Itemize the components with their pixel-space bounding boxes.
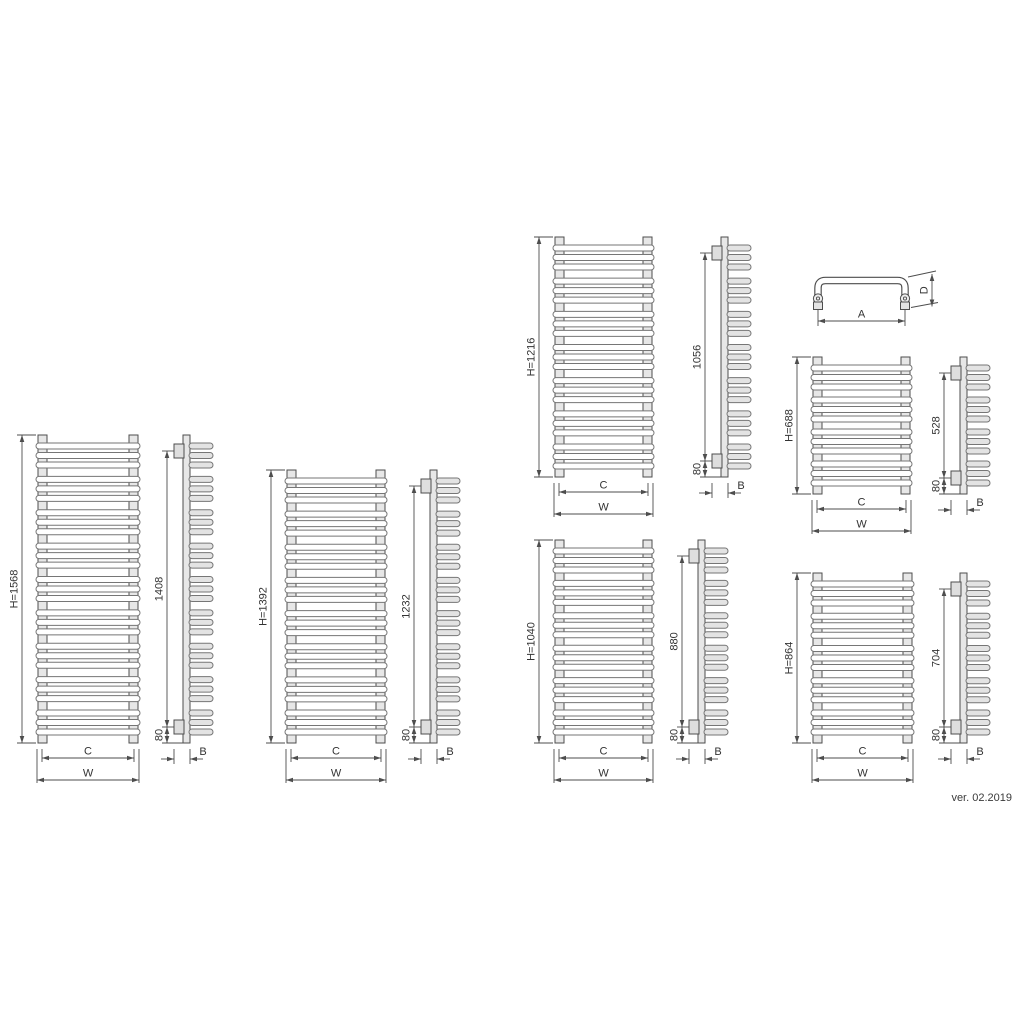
- tube-end: [704, 590, 728, 596]
- arrowhead-icon: [728, 491, 735, 496]
- tube: [811, 384, 912, 390]
- tube-end: [436, 596, 460, 602]
- depth-label: B: [199, 746, 206, 758]
- tube-end: [436, 644, 460, 650]
- tube: [36, 696, 140, 702]
- tube-end: [966, 646, 990, 652]
- tube-end: [436, 710, 460, 716]
- tube-end: [189, 662, 213, 668]
- tube: [811, 407, 912, 413]
- diagram-page: H=1568CW140880BH=1392CW123280BH=1216CW10…: [0, 0, 1024, 1024]
- tube: [36, 519, 140, 525]
- version-label: ver. 02.2019: [951, 792, 1012, 804]
- top-depth-label: D: [919, 286, 931, 294]
- arrowhead-icon: [374, 756, 381, 761]
- tube-end: [966, 375, 990, 381]
- tube-end: [966, 581, 990, 587]
- tube-end: [966, 632, 990, 638]
- tube-end: [966, 600, 990, 606]
- tube: [36, 629, 140, 635]
- bottom-offset-label: 80: [401, 729, 413, 741]
- top-depth-dimension: D: [908, 271, 938, 308]
- tube-end: [966, 397, 990, 403]
- tube-end: [704, 580, 728, 586]
- tube-end: [436, 696, 460, 702]
- top-width-label: A: [858, 309, 866, 321]
- height-label: H=1568: [9, 570, 21, 609]
- tube: [36, 686, 140, 692]
- arrowhead-icon: [904, 529, 911, 534]
- tube-end: [189, 495, 213, 501]
- tube-end: [436, 544, 460, 550]
- arrowhead-icon: [812, 529, 819, 534]
- tube: [811, 632, 914, 638]
- tube: [285, 653, 387, 659]
- arrowhead-icon: [20, 736, 25, 743]
- height-dimension: H=864: [784, 573, 812, 743]
- arrowhead-icon: [703, 454, 708, 461]
- height-label: H=688: [784, 409, 796, 442]
- tube: [811, 600, 914, 606]
- mount-span-label: 704: [931, 649, 943, 667]
- tube: [36, 662, 140, 668]
- tube-end: [966, 687, 990, 693]
- mount-span-dimension: 88080: [669, 556, 700, 743]
- tube: [553, 454, 654, 460]
- arrowhead-icon: [705, 757, 712, 762]
- arrowhead-icon: [942, 471, 947, 478]
- arrowhead-icon: [537, 736, 542, 743]
- tube: [811, 710, 914, 716]
- arrowhead-icon: [901, 756, 908, 761]
- tube-end: [704, 645, 728, 651]
- tube: [553, 255, 654, 261]
- arrowhead-icon: [414, 757, 421, 762]
- arrowhead-icon: [942, 589, 947, 596]
- tube-end: [436, 630, 460, 636]
- outer-width-label: W: [598, 502, 609, 514]
- tube-end: [189, 729, 213, 735]
- tube: [36, 495, 140, 501]
- tube-end: [436, 620, 460, 626]
- arrowhead-icon: [899, 507, 906, 512]
- tube: [553, 397, 654, 403]
- tube-end: [966, 439, 990, 445]
- arrowhead-icon: [554, 512, 561, 517]
- arrowhead-icon: [537, 540, 542, 547]
- radiator-figure-h1040: H=1040CW88080B: [526, 540, 729, 783]
- tube-end: [436, 563, 460, 569]
- tube: [553, 558, 654, 564]
- tube-end: [966, 407, 990, 413]
- tube-end: [727, 288, 751, 294]
- tube-end: [189, 720, 213, 726]
- depth-dimension: B: [408, 746, 454, 764]
- tube-end: [436, 511, 460, 517]
- wall-bracket: [951, 366, 961, 380]
- tube: [553, 364, 654, 370]
- arrowhead-icon: [967, 508, 974, 513]
- tube-end: [189, 653, 213, 659]
- tube: [811, 416, 912, 422]
- tube: [553, 311, 654, 317]
- tube-end: [704, 622, 728, 628]
- tube-end: [436, 686, 460, 692]
- tube: [811, 623, 914, 629]
- tube: [811, 581, 914, 587]
- tube-end: [966, 416, 990, 422]
- tube: [553, 590, 654, 596]
- inner-width-label: C: [600, 480, 608, 492]
- inner-width-label: C: [859, 746, 867, 758]
- bottom-offset-label: 80: [154, 729, 166, 741]
- tube-end: [704, 710, 728, 716]
- tube-end: [727, 278, 751, 284]
- tube: [285, 720, 387, 726]
- tube-end: [966, 710, 990, 716]
- tube: [553, 463, 654, 469]
- tube: [553, 697, 654, 703]
- inner-width-label: C: [332, 746, 340, 758]
- mount-span-dimension: 123280: [401, 486, 432, 743]
- radiator-dimension-drawing: H=1568CW140880BH=1392CW123280BH=1216CW10…: [0, 0, 1024, 1024]
- arrowhead-icon: [269, 470, 274, 477]
- tube-end: [436, 577, 460, 583]
- tube: [811, 448, 912, 454]
- tube-end: [189, 686, 213, 692]
- tube: [36, 529, 140, 535]
- wall-bracket: [951, 720, 961, 734]
- tube: [36, 720, 140, 726]
- tube: [553, 645, 654, 651]
- tube-end: [436, 554, 460, 560]
- tube: [553, 345, 654, 351]
- mount-span-label: 880: [669, 632, 681, 650]
- tube: [811, 591, 914, 597]
- arrowhead-icon: [944, 757, 951, 762]
- tube: [811, 429, 912, 435]
- tube: [553, 687, 654, 693]
- radiator-figure-h1392: H=1392CW123280B: [258, 470, 461, 783]
- front-view: [285, 470, 387, 743]
- height-dimension: H=1216: [526, 237, 554, 477]
- tube: [285, 663, 387, 669]
- tube: [285, 497, 387, 503]
- arrowhead-icon: [286, 778, 293, 783]
- tube-end: [189, 462, 213, 468]
- mount-span-dimension: 140880: [154, 451, 185, 743]
- tube: [285, 521, 387, 527]
- tube: [285, 677, 387, 683]
- arrowhead-icon: [703, 253, 708, 260]
- tube-end: [966, 461, 990, 467]
- wall-bracket: [689, 549, 699, 563]
- tube: [811, 613, 914, 619]
- height-label: H=1040: [526, 622, 538, 661]
- tube-end: [966, 655, 990, 661]
- tube: [285, 530, 387, 536]
- outer-width-label: W: [598, 768, 609, 780]
- height-label: H=1216: [526, 338, 538, 377]
- tube-end: [189, 453, 213, 459]
- tube: [285, 544, 387, 550]
- tube: [285, 620, 387, 626]
- wall-bracket: [951, 582, 961, 596]
- tube-end: [704, 720, 728, 726]
- arrowhead-icon: [127, 756, 134, 761]
- arrowhead-icon: [967, 757, 974, 762]
- arrowhead-icon: [165, 451, 170, 458]
- inner-width-label: C: [858, 497, 866, 509]
- tube: [553, 278, 654, 284]
- tube-end: [189, 476, 213, 482]
- tube: [553, 297, 654, 303]
- tube-end: [436, 653, 460, 659]
- tube-end: [727, 430, 751, 436]
- outer-width-label: W: [857, 768, 868, 780]
- tube-end: [966, 678, 990, 684]
- wall-bracket: [421, 479, 431, 493]
- front-view: [36, 435, 140, 743]
- tube-end: [966, 480, 990, 486]
- tube: [811, 678, 914, 684]
- tube-end: [727, 364, 751, 370]
- tube-end: [704, 558, 728, 564]
- depth-label: B: [446, 746, 453, 758]
- arrowhead-icon: [898, 319, 905, 324]
- tube: [36, 577, 140, 583]
- depth-dimension: B: [161, 746, 207, 764]
- arrowhead-icon: [705, 491, 712, 496]
- height-label: H=864: [784, 642, 796, 675]
- tube: [285, 577, 387, 583]
- tube-end: [704, 548, 728, 554]
- tube: [36, 729, 140, 735]
- tube-body: [818, 281, 905, 298]
- tube: [811, 720, 914, 726]
- arrowhead-icon: [379, 778, 386, 783]
- tube-end: [966, 720, 990, 726]
- tube-end: [436, 530, 460, 536]
- tube-end: [704, 687, 728, 693]
- tube: [36, 643, 140, 649]
- radiator-figure-h864: H=864CW70480B: [784, 573, 991, 783]
- arrowhead-icon: [795, 357, 800, 364]
- tube-end: [727, 297, 751, 303]
- tube: [553, 387, 654, 393]
- wall-bracket: [712, 246, 722, 260]
- mount-span-dimension: 105680: [692, 253, 723, 477]
- tube: [811, 471, 912, 477]
- tube: [285, 554, 387, 560]
- tube: [811, 480, 912, 486]
- tube: [285, 478, 387, 484]
- tube-end: [704, 729, 728, 735]
- tube-end: [436, 488, 460, 494]
- tube: [553, 580, 654, 586]
- tube: [36, 453, 140, 459]
- tube: [553, 430, 654, 436]
- side-view: [421, 470, 460, 743]
- depth-dimension: B: [676, 746, 722, 764]
- arrowhead-icon: [167, 757, 174, 762]
- tube: [36, 596, 140, 602]
- arrowhead-icon: [291, 756, 298, 761]
- tube: [285, 611, 387, 617]
- side-view: [689, 540, 728, 743]
- tube: [553, 655, 654, 661]
- tube: [285, 696, 387, 702]
- arrowhead-icon: [944, 508, 951, 513]
- inner-width-dimension: C: [817, 497, 906, 514]
- arrowhead-icon: [190, 757, 197, 762]
- tube: [285, 488, 387, 494]
- tube-end: [704, 632, 728, 638]
- arrowhead-icon: [269, 736, 274, 743]
- tube: [811, 397, 912, 403]
- tube: [36, 710, 140, 716]
- side-view: [174, 435, 213, 743]
- arrowhead-icon: [942, 720, 947, 727]
- side-view: [951, 357, 990, 494]
- tube: [36, 610, 140, 616]
- wall-bracket: [421, 720, 431, 734]
- tube: [36, 462, 140, 468]
- wall-bracket: [174, 444, 184, 458]
- tube: [553, 288, 654, 294]
- tube: [553, 330, 654, 336]
- dimension-line: [911, 303, 938, 308]
- tube: [553, 567, 654, 573]
- arrowhead-icon: [42, 756, 49, 761]
- tube-end: [436, 521, 460, 527]
- tube-end: [966, 365, 990, 371]
- tube-end: [727, 321, 751, 327]
- tube-end: [966, 471, 990, 477]
- tube: [553, 245, 654, 251]
- arrowhead-icon: [37, 778, 44, 783]
- tube-end: [704, 599, 728, 605]
- tube-end: [704, 655, 728, 661]
- tube: [553, 548, 654, 554]
- tube-end: [189, 529, 213, 535]
- tube: [811, 439, 912, 445]
- arrowhead-icon: [537, 237, 542, 244]
- tube-end: [189, 562, 213, 568]
- tube: [36, 586, 140, 592]
- tube-end: [704, 567, 728, 573]
- tube: [553, 420, 654, 426]
- front-view: [553, 540, 654, 743]
- front-view: [553, 237, 654, 477]
- arrowhead-icon: [680, 720, 685, 727]
- tube: [36, 543, 140, 549]
- arrowhead-icon: [795, 573, 800, 580]
- tube: [811, 697, 914, 703]
- radiator-figure-h1216: H=1216CW105680B: [526, 237, 752, 517]
- tube-end: [966, 429, 990, 435]
- tube: [811, 461, 912, 467]
- outer-width-label: W: [83, 768, 94, 780]
- height-dimension: H=1392: [258, 470, 286, 743]
- depth-dimension: B: [699, 480, 745, 498]
- radiator-figure-h1568: H=1568CW140880B: [9, 435, 214, 783]
- tube: [553, 354, 654, 360]
- tube-end: [727, 420, 751, 426]
- arrowhead-icon: [930, 274, 935, 281]
- collector-section: [901, 302, 910, 310]
- depth-label: B: [976, 497, 983, 509]
- tube-end: [436, 611, 460, 617]
- wall-bracket: [174, 720, 184, 734]
- arrowhead-icon: [132, 778, 139, 783]
- tube: [36, 562, 140, 568]
- tube-end: [727, 411, 751, 417]
- tube-end: [189, 519, 213, 525]
- tube-end: [189, 577, 213, 583]
- mount-span-label: 1408: [154, 577, 166, 601]
- depth-label: B: [737, 480, 744, 492]
- arrowhead-icon: [817, 507, 824, 512]
- tube-end: [966, 613, 990, 619]
- tube-end: [436, 663, 460, 669]
- mount-span-label: 1056: [692, 345, 704, 369]
- arrowhead-icon: [437, 757, 444, 762]
- tube: [36, 486, 140, 492]
- tube-end: [704, 664, 728, 670]
- tube: [36, 553, 140, 559]
- arrowhead-icon: [680, 556, 685, 563]
- tube-end: [727, 463, 751, 469]
- tube-end: [704, 613, 728, 619]
- arrowhead-icon: [818, 319, 825, 324]
- tube-end: [727, 454, 751, 460]
- arrowhead-icon: [165, 720, 170, 727]
- tube-end: [436, 720, 460, 726]
- tube-end: [436, 729, 460, 735]
- tube: [811, 655, 914, 661]
- inner-width-label: C: [84, 746, 92, 758]
- tube-end: [189, 596, 213, 602]
- tube-end: [966, 623, 990, 629]
- side-view: [951, 573, 990, 743]
- tube-end: [189, 696, 213, 702]
- bottom-offset-label: 80: [931, 729, 943, 741]
- inner-width-dimension: C: [559, 480, 648, 497]
- tube-end: [189, 553, 213, 559]
- tube-end: [436, 478, 460, 484]
- tube: [285, 563, 387, 569]
- height-label: H=1392: [258, 587, 270, 626]
- tube: [285, 511, 387, 517]
- tube: [285, 729, 387, 735]
- height-dimension: H=1568: [9, 435, 37, 743]
- tube-end: [727, 354, 751, 360]
- tube-end: [436, 677, 460, 683]
- inner-width-dimension: C: [291, 746, 381, 763]
- tube-end: [966, 665, 990, 671]
- arrowhead-icon: [641, 756, 648, 761]
- height-dimension: H=688: [784, 357, 812, 494]
- tube-end: [189, 629, 213, 635]
- depth-label: B: [714, 746, 721, 758]
- top-view-figure: DA: [813, 271, 938, 326]
- tube-end: [727, 444, 751, 450]
- tube: [553, 411, 654, 417]
- tube: [36, 476, 140, 482]
- height-dimension: H=1040: [526, 540, 554, 743]
- tube: [811, 665, 914, 671]
